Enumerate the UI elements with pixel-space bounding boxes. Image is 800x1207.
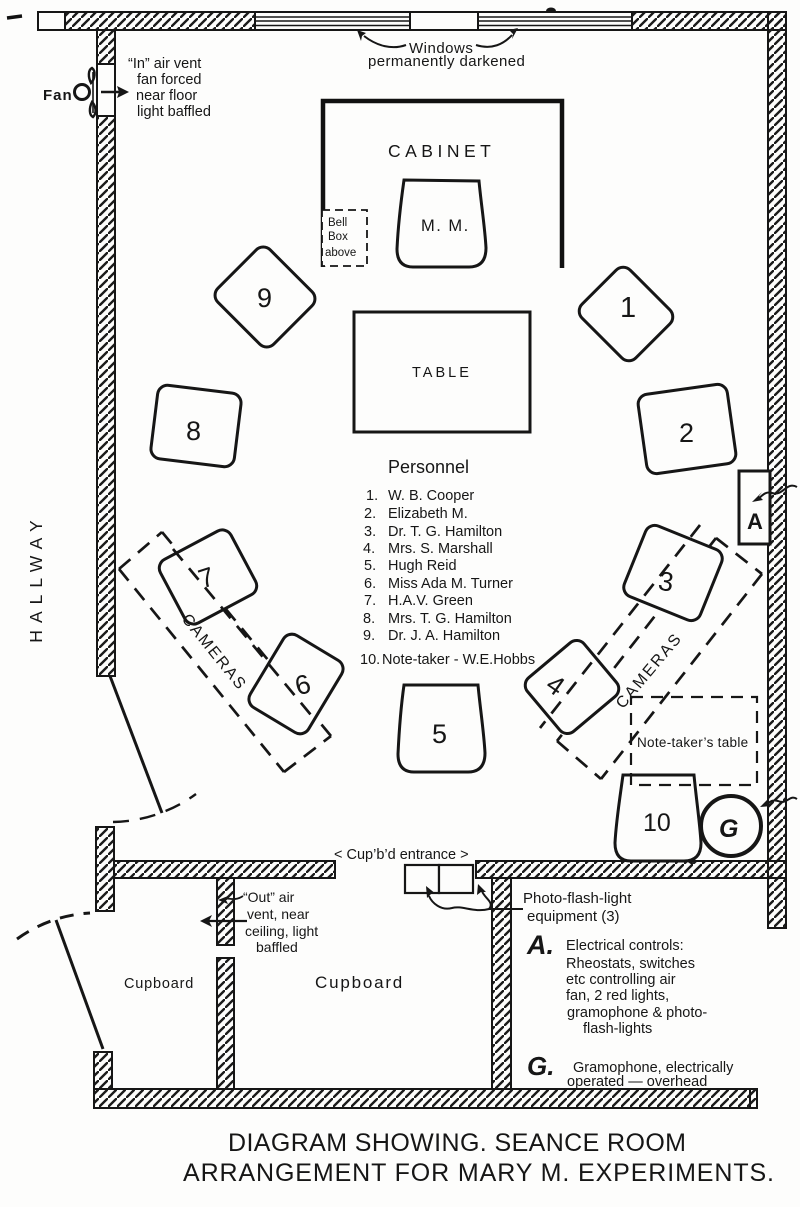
svg-text:4.: 4. xyxy=(363,541,375,557)
svg-text:Cupboard: Cupboard xyxy=(124,976,194,992)
svg-text:equipment (3): equipment (3) xyxy=(527,908,620,925)
svg-text:DIAGRAM SHOWING. SEANCE: DIAGRAM SHOWING. SEANCE ROOM xyxy=(228,1129,686,1157)
svg-text:near floor: near floor xyxy=(136,88,197,104)
svg-text:permanently darkened: permanently darkened xyxy=(368,53,525,70)
svg-text:“In” air vent: “In” air vent xyxy=(128,56,201,72)
svg-text:3.: 3. xyxy=(364,524,376,540)
svg-text:etc controlling air: etc controlling air xyxy=(566,972,676,988)
svg-text:Hugh Reid: Hugh Reid xyxy=(388,558,457,574)
svg-text:vent, near: vent, near xyxy=(247,906,310,922)
svg-text:9: 9 xyxy=(257,283,272,313)
svg-text:1: 1 xyxy=(620,292,636,324)
svg-text:Photo-flash-light: Photo-flash-light xyxy=(523,890,632,907)
svg-text:Fan: Fan xyxy=(43,87,73,104)
svg-text:ceiling, light: ceiling, light xyxy=(245,923,318,939)
svg-text:Note-taker’s table: Note-taker’s table xyxy=(637,735,748,750)
svg-text:1.: 1. xyxy=(366,488,378,504)
svg-text:ARRANGEMENT FOR MARY M.: ARRANGEMENT FOR MARY M. EXPERIMENTS. xyxy=(183,1159,774,1187)
svg-text:Mrs. T. G. Hamilton: Mrs. T. G. Hamilton xyxy=(388,611,512,627)
svg-text:CABINET: CABINET xyxy=(388,141,495,161)
svg-text:10.: 10. xyxy=(360,652,380,668)
svg-text:above: above xyxy=(325,247,356,259)
svg-text:2: 2 xyxy=(679,418,694,448)
svg-text:Electrical controls:: Electrical controls: xyxy=(566,938,684,954)
svg-text:Miss Ada M. Turner: Miss Ada M. Turner xyxy=(388,576,513,592)
svg-text:8.: 8. xyxy=(363,611,375,627)
svg-text:W. B. Cooper: W. B. Cooper xyxy=(388,488,474,504)
svg-text:Rheostats, switches: Rheostats, switches xyxy=(566,956,695,972)
svg-text:TABLE: TABLE xyxy=(412,365,472,381)
svg-text:HALLWAY: HALLWAY xyxy=(26,513,46,642)
svg-text:“Out” air: “Out” air xyxy=(243,889,295,905)
svg-text:2.: 2. xyxy=(364,506,376,522)
svg-text:fan, 2 red lights,: fan, 2 red lights, xyxy=(566,988,669,1004)
svg-text:H.A.V. Green: H.A.V. Green xyxy=(388,593,473,609)
svg-text:Bell: Bell xyxy=(328,217,347,229)
svg-text:Dr. J. A. Hamilton: Dr. J. A. Hamilton xyxy=(388,628,500,644)
svg-text:M. M.: M. M. xyxy=(421,217,470,235)
svg-text:Box: Box xyxy=(328,231,348,243)
svg-text:baffled: baffled xyxy=(256,939,298,955)
svg-text:operated — overhead: operated — overhead xyxy=(567,1074,707,1090)
svg-text:9.: 9. xyxy=(363,628,375,644)
svg-text:10: 10 xyxy=(643,809,671,837)
svg-text:8: 8 xyxy=(186,416,201,446)
svg-text:CAMERAS: CAMERAS xyxy=(178,611,250,694)
svg-text:G.: G. xyxy=(527,1051,554,1081)
svg-text:flash-lights: flash-lights xyxy=(583,1021,652,1037)
svg-text:6.: 6. xyxy=(364,576,376,592)
svg-text:Dr. T. G. Hamilton: Dr. T. G. Hamilton xyxy=(388,524,502,540)
svg-text:5.: 5. xyxy=(364,558,376,574)
svg-text:CAMERAS: CAMERAS xyxy=(613,630,686,712)
svg-text:Cupboard: Cupboard xyxy=(315,973,404,992)
svg-text:Elizabeth M.: Elizabeth M. xyxy=(388,506,468,522)
svg-text:light baffled: light baffled xyxy=(137,104,211,120)
svg-text:A.: A. xyxy=(526,930,554,960)
svg-text:G: G xyxy=(719,815,738,843)
svg-text:Mrs. S. Marshall: Mrs. S. Marshall xyxy=(388,541,493,557)
svg-text:A: A xyxy=(747,509,763,534)
svg-text:fan forced: fan forced xyxy=(137,72,202,88)
svg-text:5: 5 xyxy=(432,719,447,749)
svg-text:7.: 7. xyxy=(364,593,376,609)
svg-text:< Cup’b’d entrance >: < Cup’b’d entrance > xyxy=(334,847,469,863)
svg-text:Note-taker - W.E.Hobbs: Note-taker - W.E.Hobbs xyxy=(382,652,535,668)
svg-text:Personnel: Personnel xyxy=(388,457,469,477)
svg-text:gramophone & photo-: gramophone & photo- xyxy=(567,1005,707,1021)
